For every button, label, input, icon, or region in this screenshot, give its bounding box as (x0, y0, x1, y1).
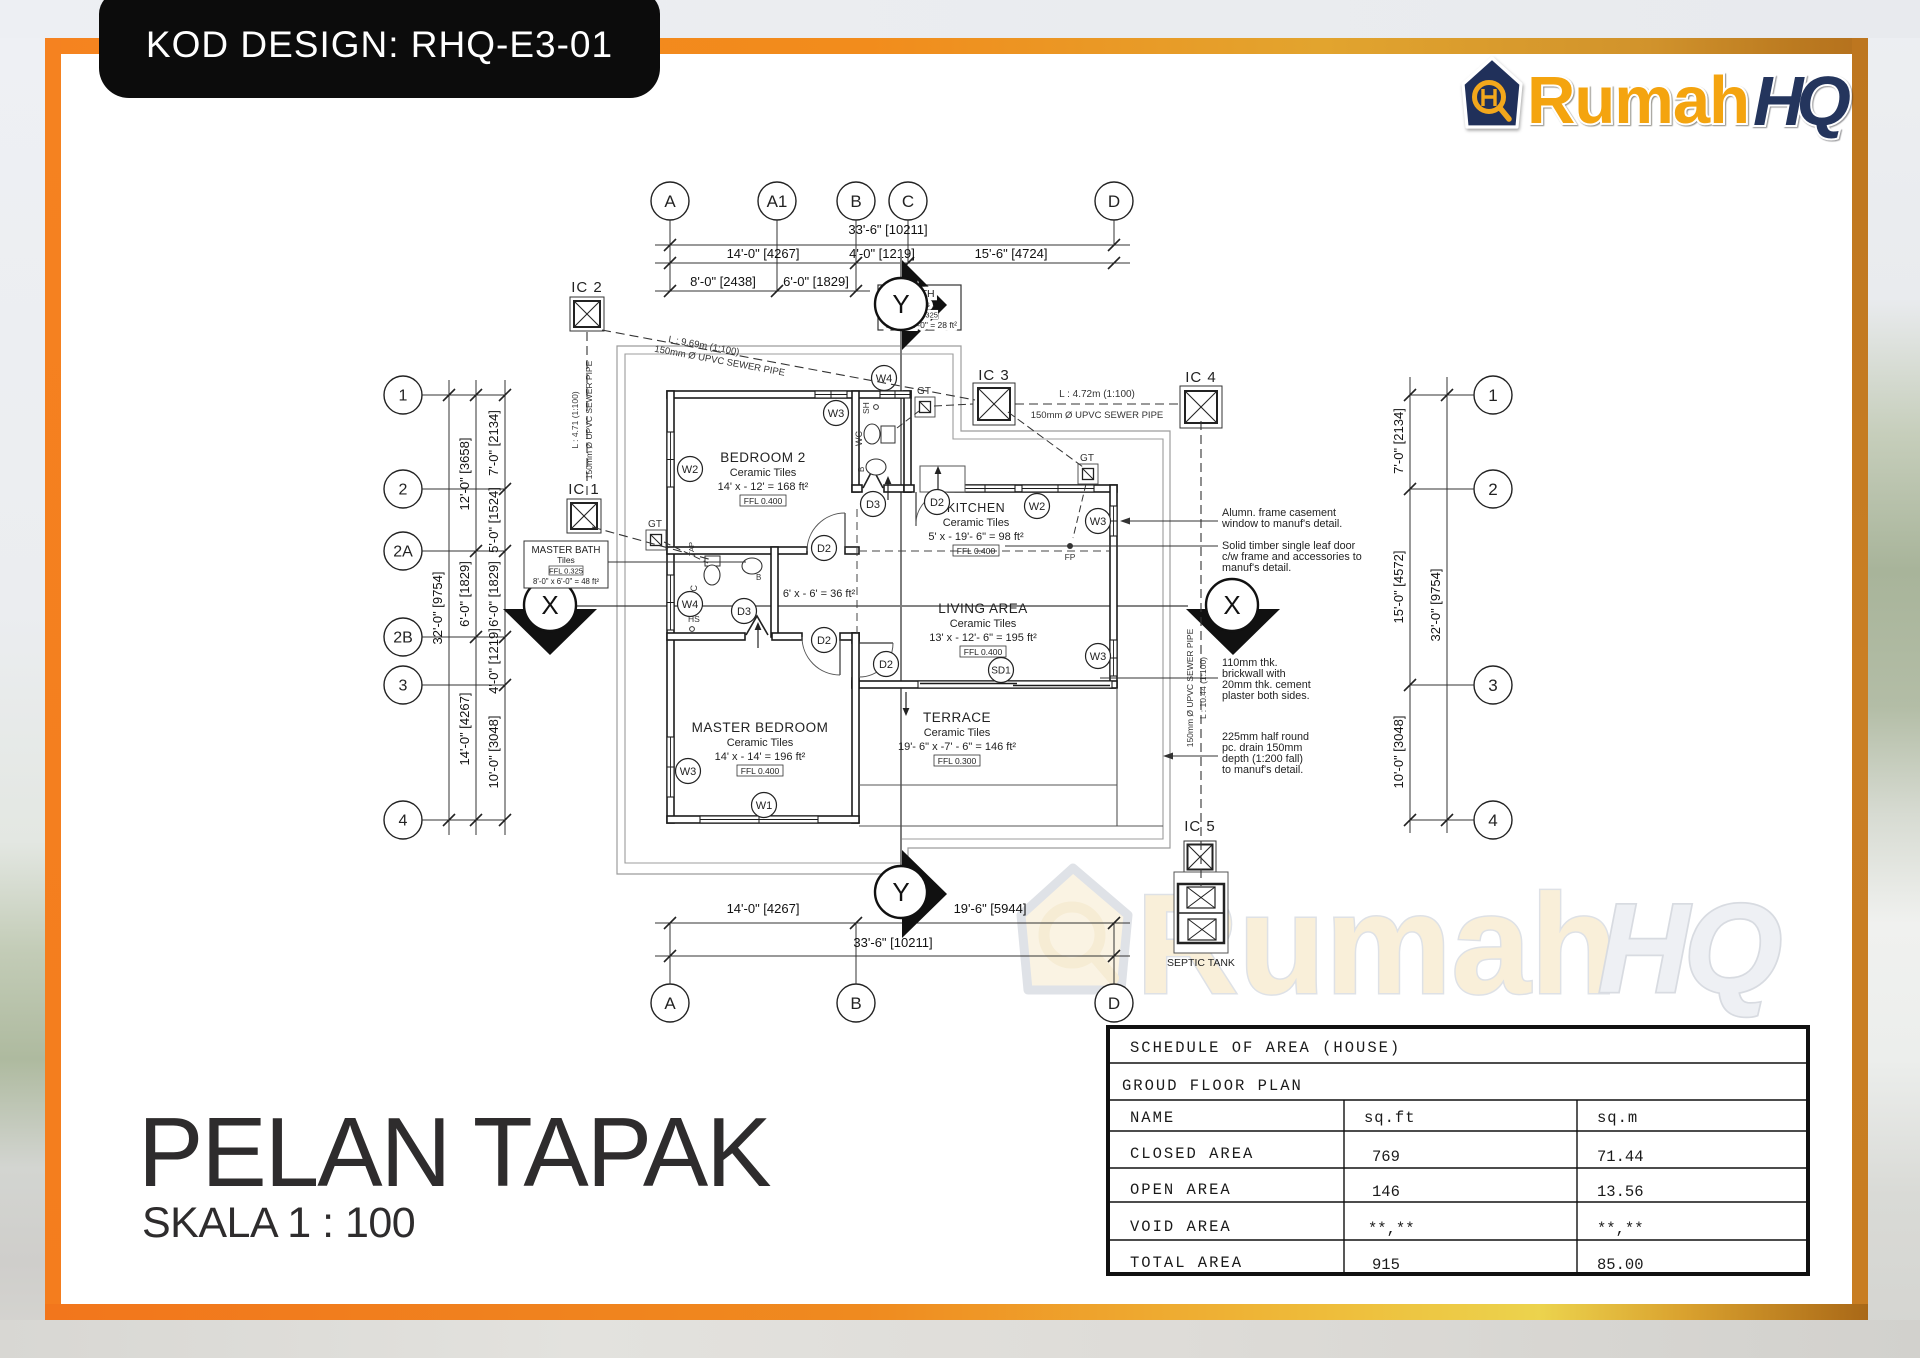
svg-text:TOTAL AREA: TOTAL AREA (1130, 1254, 1243, 1272)
svg-text:IC 4: IC 4 (1185, 369, 1217, 386)
svg-text:6'-0" [1829]: 6'-0" [1829] (457, 561, 472, 627)
svg-text:PELAN TAPAK: PELAN TAPAK (138, 1097, 771, 1207)
svg-text:SEPTIC TANK: SEPTIC TANK (1167, 957, 1235, 969)
svg-text:W1: W1 (756, 800, 773, 812)
svg-text:B: B (756, 573, 761, 582)
svg-text:14'-0" [4267]: 14'-0" [4267] (727, 901, 800, 916)
svg-text:B: B (850, 994, 861, 1013)
svg-text:GT: GT (917, 386, 931, 397)
svg-text:Y: Y (892, 289, 909, 319)
svg-text:W2: W2 (682, 464, 699, 476)
svg-text:W3: W3 (1090, 651, 1107, 663)
svg-text:IC 1: IC 1 (568, 481, 600, 498)
svg-text:3: 3 (399, 678, 408, 695)
svg-text:2: 2 (399, 482, 408, 499)
svg-text:KITCHEN: KITCHEN (947, 501, 1005, 515)
svg-text:A: A (664, 994, 676, 1013)
svg-text:Ceramic Tiles: Ceramic Tiles (943, 517, 1010, 529)
svg-text:GT: GT (648, 519, 662, 530)
svg-text:32'-0" [9754]: 32'-0" [9754] (1428, 569, 1443, 642)
svg-text:W3: W3 (680, 766, 697, 778)
svg-text:Tiles: Tiles (557, 555, 575, 565)
svg-text:W2: W2 (1029, 501, 1046, 513)
svg-text:A1: A1 (767, 192, 788, 211)
svg-text:W4: W4 (682, 599, 699, 611)
svg-text:19'-6" [5944]: 19'-6" [5944] (954, 901, 1027, 916)
svg-text:**,**: **,** (1597, 1220, 1644, 1238)
svg-text:FFL 0.400: FFL 0.400 (957, 546, 996, 556)
svg-text:6'-0" [1829]: 6'-0" [1829] (486, 561, 501, 627)
svg-text:769: 769 (1372, 1148, 1400, 1166)
svg-text:3: 3 (1488, 676, 1497, 695)
svg-text:CLOSED AREA: CLOSED AREA (1130, 1145, 1254, 1163)
svg-text:FP: FP (1065, 552, 1076, 562)
svg-text:13' x - 12'- 6" = 195 ft²: 13' x - 12'- 6" = 195 ft² (929, 632, 1037, 644)
svg-text:D2: D2 (817, 543, 831, 555)
svg-text:window to manuf's detail.: window to manuf's detail. (1221, 518, 1342, 530)
svg-text:C: C (902, 192, 914, 211)
svg-text:71.44: 71.44 (1597, 1148, 1644, 1166)
svg-text:GROUD FLOOR PLAN: GROUD FLOOR PLAN (1122, 1077, 1303, 1095)
svg-text:2: 2 (1488, 480, 1497, 499)
svg-text:13.56: 13.56 (1597, 1183, 1644, 1201)
svg-text:Y: Y (892, 877, 909, 907)
svg-text:14'-0" [4267]: 14'-0" [4267] (727, 246, 800, 261)
svg-text:915: 915 (1372, 1256, 1400, 1274)
svg-text:6'-0" [1829]: 6'-0" [1829] (783, 274, 849, 289)
svg-text:D3: D3 (866, 499, 880, 511)
svg-text:Ceramic Tiles: Ceramic Tiles (924, 727, 991, 739)
svg-text:plaster both sides.: plaster both sides. (1222, 690, 1310, 702)
svg-text:D2: D2 (930, 497, 944, 509)
svg-text:B: B (857, 467, 866, 472)
svg-text:sq.m: sq.m (1597, 1109, 1638, 1127)
svg-text:WC: WC (854, 431, 864, 446)
svg-text:1: 1 (399, 388, 408, 405)
svg-text:SD1: SD1 (991, 666, 1011, 677)
svg-text:6' x - 6' = 36 ft²: 6' x - 6' = 36 ft² (783, 588, 856, 600)
svg-text:150mm Ø UPVC SEWER PIPE: 150mm Ø UPVC SEWER PIPE (1185, 628, 1195, 747)
svg-text:4'-0" [1219]: 4'-0" [1219] (849, 246, 915, 261)
svg-text:GT: GT (1080, 453, 1094, 464)
svg-text:D: D (1108, 994, 1120, 1013)
svg-text:L : 4.72m (1:100): L : 4.72m (1:100) (1059, 389, 1135, 400)
svg-text:IC 3: IC 3 (978, 367, 1010, 384)
svg-text:8'-0" x 6'-0" = 48 ft²: 8'-0" x 6'-0" = 48 ft² (533, 577, 599, 586)
svg-text:HQ: HQ (1598, 878, 1780, 1019)
svg-text:BEDROOM 2: BEDROOM 2 (720, 450, 806, 465)
svg-text:manuf's detail.: manuf's detail. (1222, 562, 1291, 574)
svg-text:33'-6" [10211]: 33'-6" [10211] (848, 222, 927, 237)
svg-text:SH: SH (861, 402, 871, 414)
svg-text:X: X (1223, 590, 1240, 620)
svg-text:10'-0" [3048]: 10'-0" [3048] (1391, 716, 1406, 789)
svg-text:W3: W3 (828, 408, 845, 420)
svg-text:4: 4 (399, 813, 408, 830)
svg-text:D3: D3 (737, 606, 751, 618)
svg-text:14' x - 14' = 196 ft²: 14' x - 14' = 196 ft² (715, 751, 806, 763)
svg-text:150mm Ø UPVC SEWER PIPE: 150mm Ø UPVC SEWER PIPE (584, 360, 594, 479)
svg-text:FFL 0.400: FFL 0.400 (741, 766, 780, 776)
svg-text:sq.ft: sq.ft (1364, 1109, 1416, 1127)
svg-text:FFL 0.300: FFL 0.300 (938, 756, 977, 766)
svg-text:5' x - 19'- 6" = 98 ft²: 5' x - 19'- 6" = 98 ft² (928, 531, 1024, 543)
svg-text:D2: D2 (879, 659, 893, 671)
svg-text:4: 4 (1488, 811, 1497, 830)
svg-text:85.00: 85.00 (1597, 1256, 1644, 1274)
svg-text:FFL 0.400: FFL 0.400 (744, 496, 783, 506)
svg-text:15'-6" [4724]: 15'-6" [4724] (975, 246, 1048, 261)
svg-text:2B: 2B (393, 630, 413, 647)
svg-text:IC 5: IC 5 (1184, 818, 1216, 835)
svg-text:L : 4.71 (1:100): L : 4.71 (1:100) (570, 391, 580, 449)
svg-text:HQ: HQ (1753, 62, 1851, 140)
svg-text:33'-6" [10211]: 33'-6" [10211] (853, 935, 932, 950)
svg-text:IC 2: IC 2 (571, 279, 603, 296)
svg-text:146: 146 (1372, 1183, 1400, 1201)
svg-text:D: D (1108, 192, 1120, 211)
svg-text:19'- 6" x -7' - 6" = 146 f: 19'- 6" x -7' - 6" = 146 ft² (898, 741, 1016, 753)
svg-text:SKALA 1 : 100: SKALA 1 : 100 (142, 1199, 415, 1247)
svg-text:7'-0" [2134]: 7'-0" [2134] (486, 410, 501, 476)
svg-text:2A: 2A (393, 544, 413, 561)
svg-text:Ceramic Tiles: Ceramic Tiles (730, 467, 797, 479)
svg-text:FFL 0.325: FFL 0.325 (549, 567, 583, 576)
svg-text:5'-0" [1524]: 5'-0" [1524] (486, 487, 501, 553)
svg-text:MASTER BEDROOM: MASTER BEDROOM (692, 720, 829, 735)
svg-text:1: 1 (1488, 386, 1497, 405)
svg-text:W3: W3 (1090, 516, 1107, 528)
svg-text:8'-0" [2438]: 8'-0" [2438] (690, 274, 756, 289)
svg-text:4'-0" [1219]: 4'-0" [1219] (486, 628, 501, 694)
svg-text:12'-0" [3658]: 12'-0" [3658] (457, 438, 472, 511)
svg-text:OPEN AREA: OPEN AREA (1130, 1181, 1232, 1199)
svg-text:7'-0" [2134]: 7'-0" [2134] (1391, 408, 1406, 474)
svg-text:FFL 0.400: FFL 0.400 (964, 647, 1003, 657)
svg-text:Rumah: Rumah (1527, 63, 1749, 138)
svg-text:to manuf's detail.: to manuf's detail. (1222, 764, 1303, 776)
svg-text:150mm Ø UPVC SEWER PIPE: 150mm Ø UPVC SEWER PIPE (1031, 410, 1164, 421)
svg-text:L : 10.44 (1:100): L : 10.44 (1:100) (1198, 657, 1208, 719)
svg-text:B: B (850, 192, 861, 211)
svg-text:32'-0" [9754]: 32'-0" [9754] (430, 572, 445, 645)
svg-text:VOID AREA: VOID AREA (1130, 1218, 1232, 1236)
svg-text:15'-0" [4572]: 15'-0" [4572] (1391, 551, 1406, 624)
svg-text:SCHEDULE OF AREA (HOUSE): SCHEDULE OF AREA (HOUSE) (1130, 1039, 1401, 1057)
svg-text:Ceramic Tiles: Ceramic Tiles (727, 737, 794, 749)
svg-text:LIVING AREA: LIVING AREA (938, 601, 1028, 616)
svg-text:D2: D2 (817, 635, 831, 647)
svg-text:10'-0" [3048]: 10'-0" [3048] (486, 716, 501, 789)
svg-text:**,**: **,** (1368, 1220, 1415, 1238)
svg-text:Ceramic Tiles: Ceramic Tiles (950, 618, 1017, 630)
svg-text:14' x - 12' = 168 ft²: 14' x - 12' = 168 ft² (718, 481, 809, 493)
svg-text:TERRACE: TERRACE (923, 710, 991, 725)
svg-text:A: A (664, 192, 676, 211)
svg-text:14'-0" [4267]: 14'-0" [4267] (457, 693, 472, 766)
svg-text:NAME: NAME (1130, 1109, 1175, 1127)
svg-text:X: X (541, 590, 558, 620)
